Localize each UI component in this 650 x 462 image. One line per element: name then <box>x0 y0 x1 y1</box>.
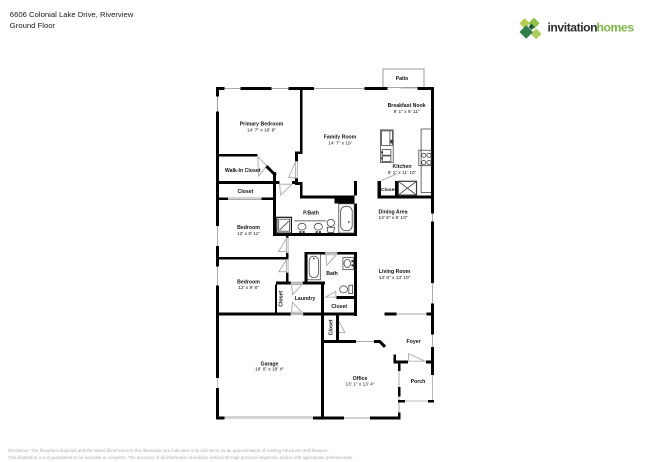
svg-text:Walk-In Closet: Walk-In Closet <box>225 168 261 174</box>
svg-text:Closet: Closet <box>328 319 334 335</box>
svg-text:Closet: Closet <box>237 189 253 195</box>
svg-text:13' 6" x 8' 10": 13' 6" x 8' 10" <box>379 215 408 221</box>
svg-text:12' x 9' 11": 12' x 9' 11" <box>237 231 260 237</box>
svg-text:9' 1" x 11' 10": 9' 1" x 11' 10" <box>388 170 417 176</box>
svg-text:12' x 9' 8": 12' x 9' 8" <box>238 285 259 291</box>
svg-text:9' 1" x 6' 11": 9' 1" x 6' 11" <box>394 109 420 115</box>
svg-text:P.Bath: P.Bath <box>303 210 319 216</box>
svg-text:14' 7" x 16' 8": 14' 7" x 16' 8" <box>247 128 276 134</box>
svg-text:Closet: Closet <box>279 291 285 307</box>
svg-text:Bath: Bath <box>326 271 338 277</box>
svg-text:13' 1" x 13' 4": 13' 1" x 13' 4" <box>346 382 375 388</box>
svg-text:Living Room: Living Room <box>379 269 411 275</box>
svg-text:13' 6" x 13' 10": 13' 6" x 13' 10" <box>379 275 411 281</box>
svg-text:Closet: Closet <box>331 304 347 310</box>
svg-text:Family Room: Family Room <box>324 134 357 140</box>
svg-text:Office: Office <box>353 376 368 382</box>
svg-text:Foyer: Foyer <box>407 339 421 345</box>
svg-text:Kitchen: Kitchen <box>392 164 411 170</box>
svg-text:Bedroom: Bedroom <box>237 225 260 231</box>
svg-text:14' 7" x 19': 14' 7" x 19' <box>328 141 351 147</box>
svg-text:Bedroom: Bedroom <box>237 279 260 285</box>
svg-text:Breakfast Nook: Breakfast Nook <box>388 103 426 109</box>
svg-text:Patio: Patio <box>396 76 409 82</box>
svg-text:Closet: Closet <box>381 187 396 193</box>
svg-text:18' 6" x 18' 4": 18' 6" x 18' 4" <box>255 366 284 372</box>
svg-text:Dining Area: Dining Area <box>379 209 408 215</box>
svg-text:Primary Bedroom: Primary Bedroom <box>240 122 284 128</box>
svg-text:Porch: Porch <box>411 379 426 385</box>
svg-text:Laundry: Laundry <box>295 296 316 302</box>
